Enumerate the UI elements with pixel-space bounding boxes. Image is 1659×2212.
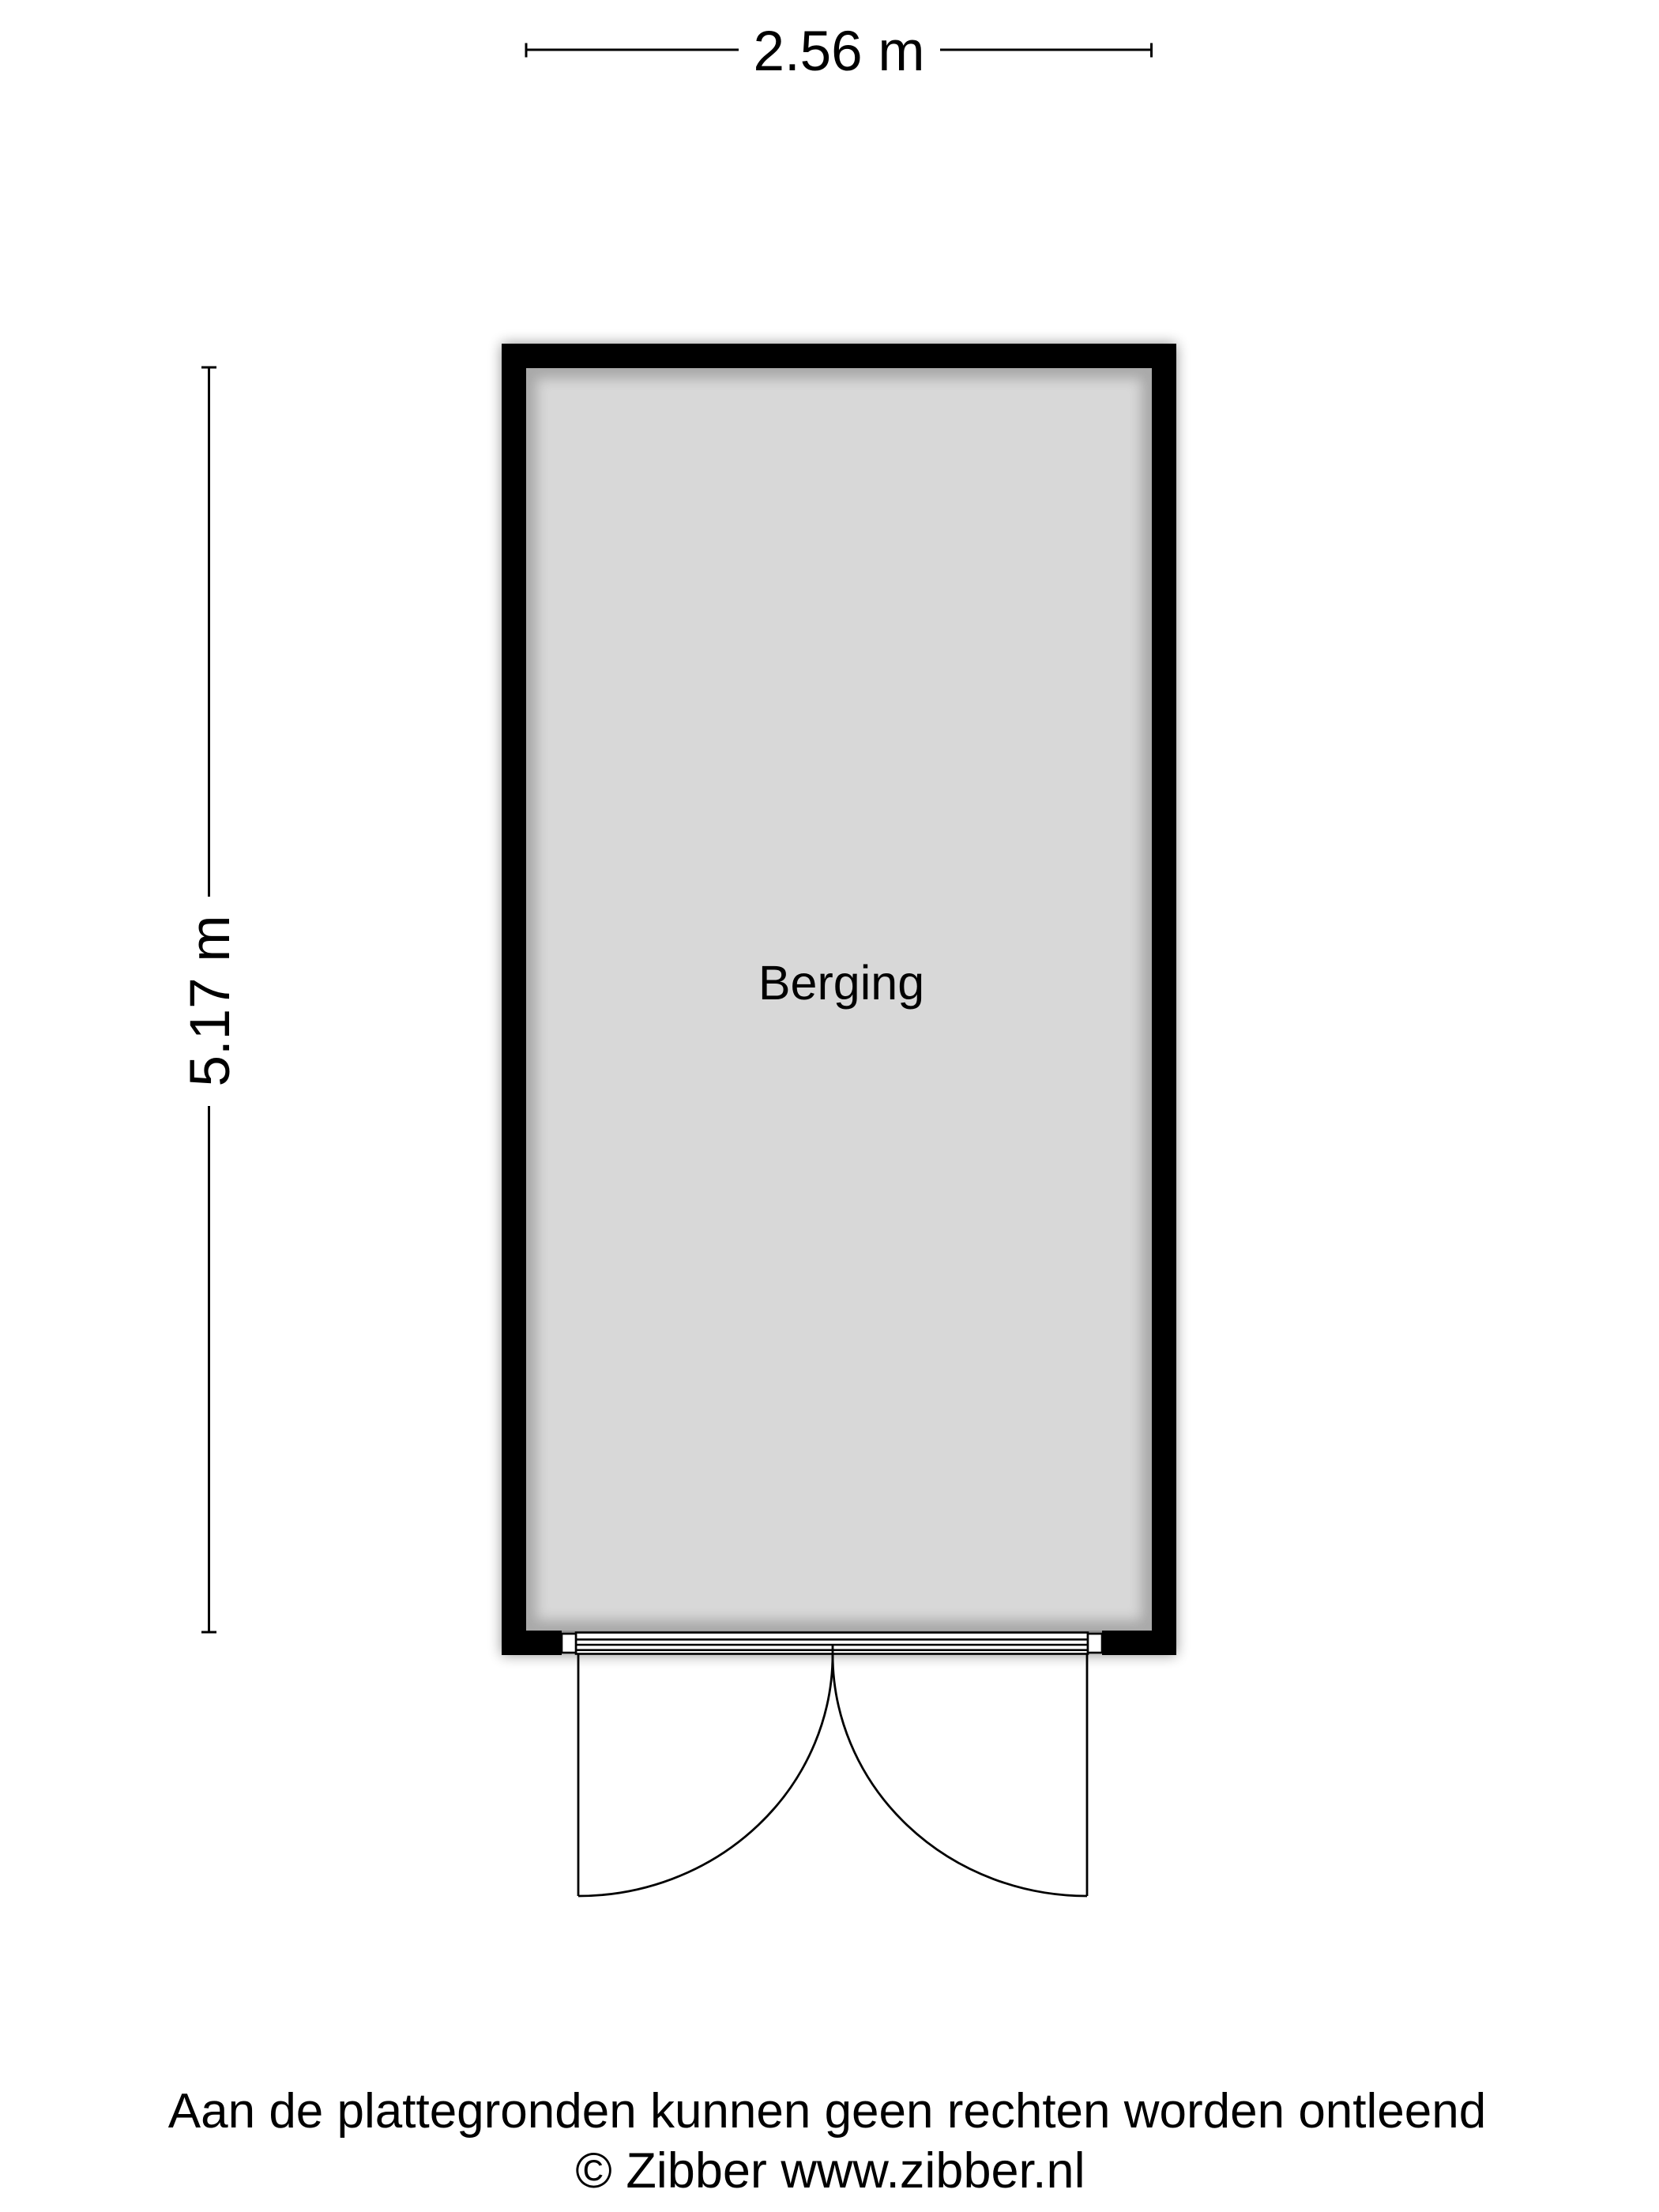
- svg-text:Berging: Berging: [758, 956, 924, 1010]
- svg-text:5.17 m: 5.17 m: [179, 915, 242, 1086]
- svg-text:Aan de plattegronden kunnen ge: Aan de plattegronden kunnen geen rechten…: [168, 2084, 1486, 2139]
- svg-text:© Zibber www.zibber.nl: © Zibber www.zibber.nl: [575, 2143, 1085, 2199]
- svg-text:2.56 m: 2.56 m: [753, 21, 924, 83]
